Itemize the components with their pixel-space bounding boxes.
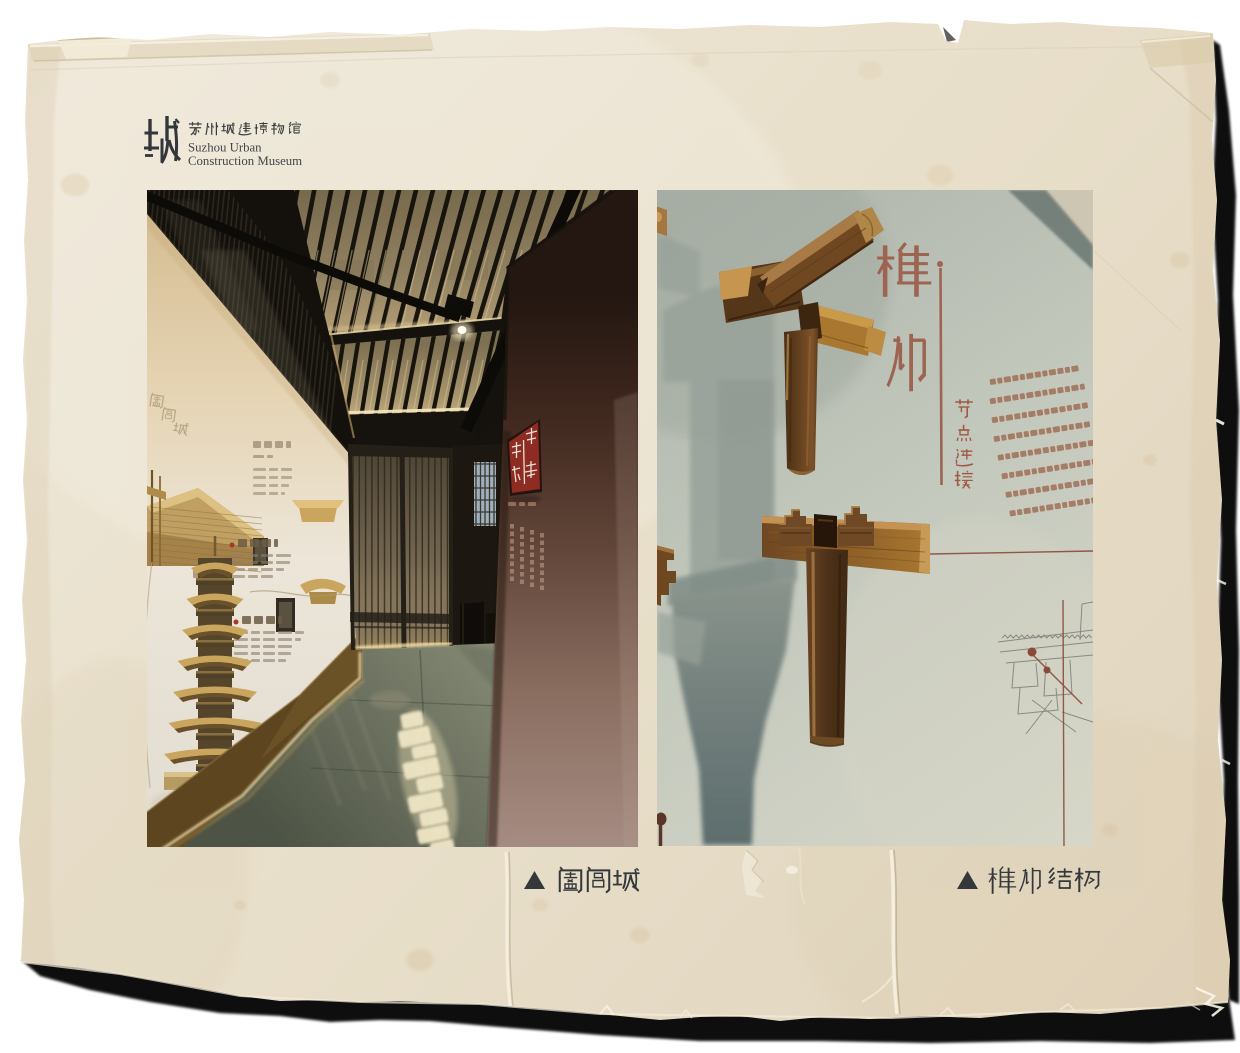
svg-text:Construction Museum: Construction Museum bbox=[188, 154, 302, 168]
svg-text:Suzhou Urban: Suzhou Urban bbox=[188, 141, 262, 155]
